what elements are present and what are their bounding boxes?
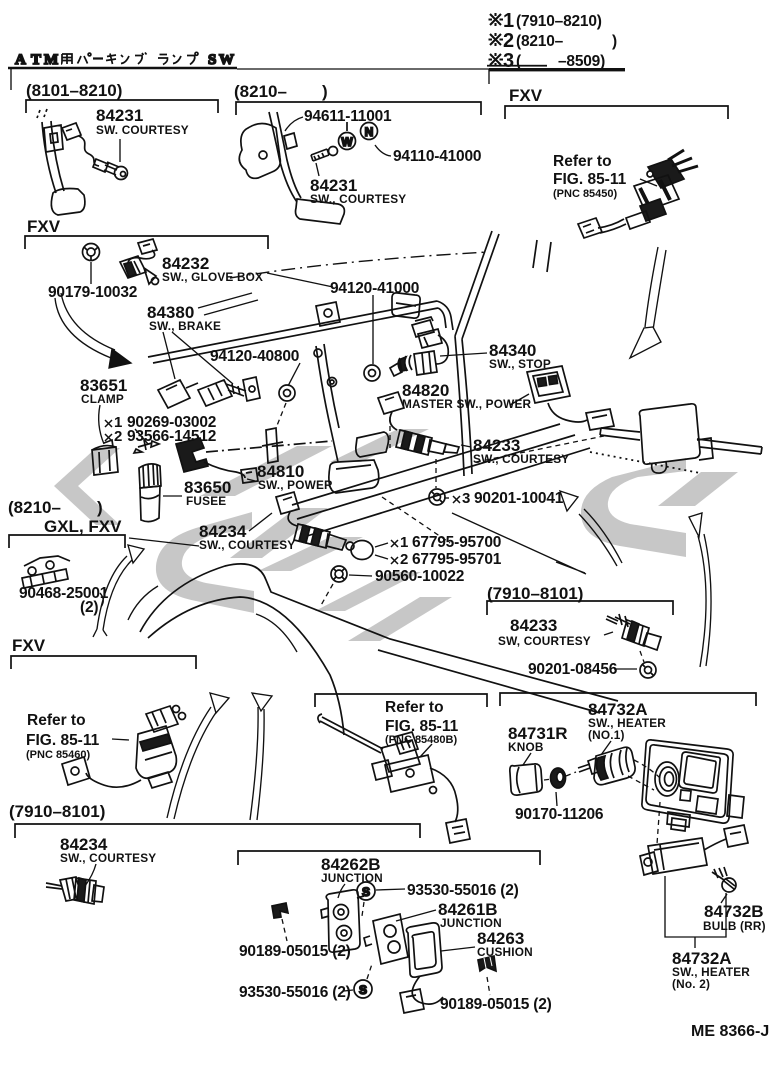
svg-text:2: 2: [400, 551, 408, 568]
svg-text:90170-11206: 90170-11206: [515, 806, 604, 823]
svg-text:S: S: [208, 52, 216, 68]
svg-text:FIG. 85-11: FIG. 85-11: [553, 171, 627, 188]
svg-text:FXV: FXV: [509, 86, 543, 105]
svg-text:FXV: FXV: [27, 217, 61, 236]
svg-text:(7910–8210): (7910–8210): [516, 13, 602, 30]
svg-text:93530-55016 (2): 93530-55016 (2): [407, 882, 519, 899]
svg-text:94110-41000: 94110-41000: [393, 148, 481, 165]
svg-text:(NO.1): (NO.1): [588, 728, 625, 742]
svg-text:): ): [322, 82, 328, 101]
svg-text:SW., BRAKE: SW., BRAKE: [149, 319, 221, 333]
svg-text:3: 3: [462, 490, 470, 507]
svg-text:(8210–: (8210–: [516, 33, 564, 50]
svg-text:Refer to: Refer to: [553, 153, 612, 170]
svg-text:90179-10032: 90179-10032: [48, 284, 137, 301]
svg-text:93530-55016 (2): 93530-55016 (2): [239, 984, 351, 1001]
svg-text:(8210–: (8210–: [8, 498, 61, 517]
svg-text:(PNC 85450): (PNC 85450): [553, 188, 618, 200]
svg-text:): ): [97, 498, 103, 517]
svg-text:T: T: [31, 52, 41, 68]
svg-text:(8210–: (8210–: [234, 82, 287, 101]
svg-text:JUNCTION: JUNCTION: [321, 871, 383, 885]
svg-text:FXV: FXV: [12, 636, 46, 655]
svg-text:W: W: [219, 52, 234, 68]
svg-text:W: W: [341, 135, 353, 149]
svg-text:SW., POWER: SW., POWER: [258, 478, 333, 492]
svg-text:(PNC 85460): (PNC 85460): [26, 749, 91, 761]
svg-text:Refer to: Refer to: [27, 712, 86, 729]
svg-text:SW., COURTESY: SW., COURTESY: [473, 452, 569, 466]
svg-text:SW., COURTESY: SW., COURTESY: [60, 851, 156, 865]
svg-text:2: 2: [503, 30, 514, 52]
svg-text:KNOB: KNOB: [508, 740, 544, 754]
svg-text:1: 1: [503, 10, 514, 32]
svg-text:94611-11001: 94611-11001: [304, 108, 392, 125]
svg-text:Refer to: Refer to: [385, 699, 444, 716]
svg-text:S: S: [359, 983, 367, 997]
svg-text:S: S: [362, 885, 370, 899]
svg-text:): ): [612, 33, 617, 50]
svg-text:M: M: [44, 52, 58, 68]
svg-text:SW, COURTESY: SW, COURTESY: [498, 634, 591, 648]
svg-text:FIG. 85-11: FIG. 85-11: [26, 732, 100, 749]
svg-text:67795-95700: 67795-95700: [412, 534, 501, 551]
svg-text:SW. COURTESY: SW. COURTESY: [96, 123, 189, 137]
svg-text:67795-95701: 67795-95701: [412, 551, 502, 568]
svg-text:SW., GLOVE BOX: SW., GLOVE BOX: [162, 270, 263, 284]
svg-text:90201-10041: 90201-10041: [474, 490, 564, 507]
svg-text:94120-40800: 94120-40800: [210, 348, 299, 365]
svg-text:(7910–8101): (7910–8101): [9, 802, 105, 821]
svg-text:(8101–8210): (8101–8210): [26, 81, 122, 100]
svg-text:N: N: [365, 125, 374, 139]
svg-text:90189-05015 (2): 90189-05015 (2): [440, 996, 552, 1013]
svg-text:BULB (RR): BULB (RR): [703, 919, 766, 933]
svg-text:SW., COURTESY: SW., COURTESY: [199, 538, 295, 552]
svg-text:1: 1: [400, 534, 408, 551]
svg-text:FIG. 85-11: FIG. 85-11: [385, 718, 459, 735]
svg-text:(No. 2): (No. 2): [672, 977, 710, 991]
svg-text:90560-10022: 90560-10022: [375, 568, 464, 585]
svg-text:(2): (2): [80, 599, 98, 616]
svg-text:CLAMP: CLAMP: [81, 392, 124, 406]
svg-text:90201-08456: 90201-08456: [528, 661, 618, 678]
svg-text:A: A: [15, 52, 26, 68]
svg-text:CUSHION: CUSHION: [477, 945, 533, 959]
svg-text:GXL, FXV: GXL, FXV: [44, 517, 122, 536]
svg-text:(7910–8101): (7910–8101): [487, 584, 583, 603]
svg-text:ME 8366-J: ME 8366-J: [691, 1023, 769, 1040]
svg-text:SW., COURTESY: SW., COURTESY: [310, 192, 406, 206]
svg-text:JUNCTION: JUNCTION: [440, 916, 502, 930]
svg-text:–8509): –8509): [558, 53, 605, 70]
svg-text:93566-14512: 93566-14512: [127, 428, 216, 445]
svg-text:FUSEE: FUSEE: [186, 494, 226, 508]
svg-text:2: 2: [114, 428, 122, 445]
svg-text:84233: 84233: [510, 616, 557, 635]
